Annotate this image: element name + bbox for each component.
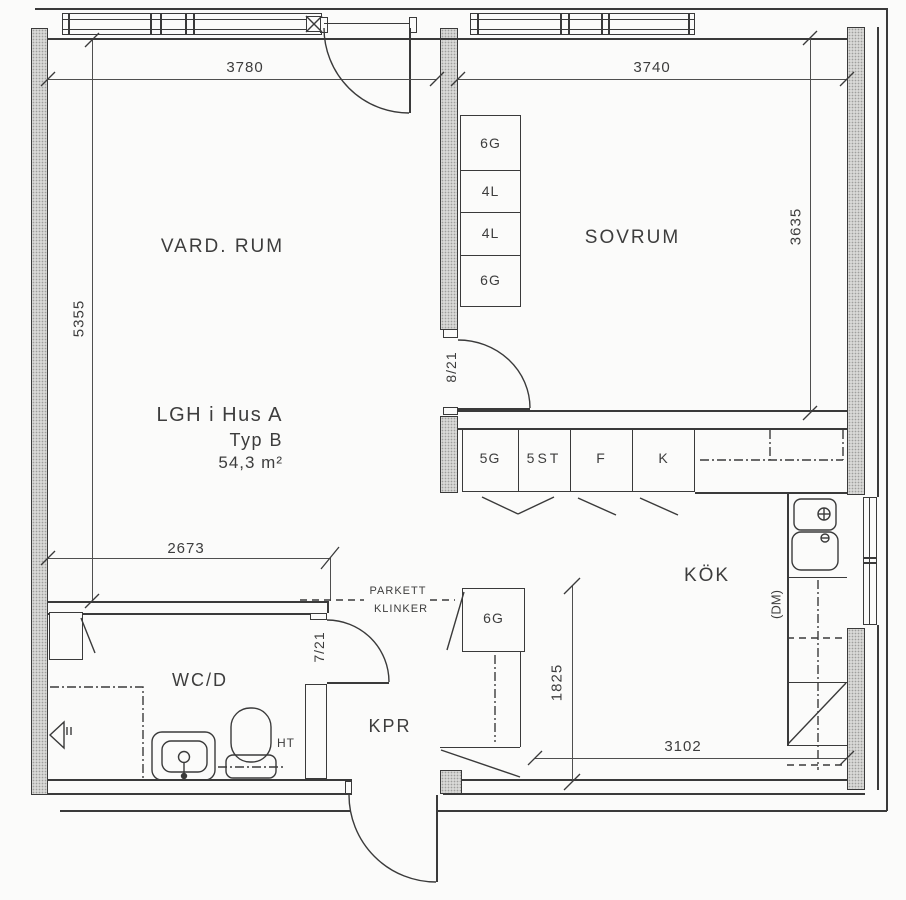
- dim-line-1825: [572, 586, 573, 782]
- bedroom-window-mullion-3: [601, 13, 603, 35]
- wcd-wall-right: [305, 684, 327, 779]
- wardrobe-divider-2: [460, 212, 521, 213]
- bedroom-window-glass-2: [470, 29, 695, 30]
- bottom-wall-bottom-left: [48, 793, 352, 795]
- right-wall-outer-lower: [877, 625, 879, 790]
- kitchen-window-split-2: [863, 562, 877, 564]
- wcd-wall-top-end: [327, 601, 329, 613]
- bedroom-door-leaf: [458, 408, 530, 410]
- hall-niche-top-edge: [440, 747, 520, 748]
- living-window-glass-2: [62, 29, 322, 30]
- wcd-wall-top-2: [48, 613, 327, 615]
- washbasin-bowl: [162, 741, 207, 772]
- counter-diagonal: [788, 683, 846, 744]
- outer-line-bottom-right: [438, 810, 887, 812]
- dim-line-3740: [458, 79, 847, 80]
- sink-counter-left-edge: [787, 492, 789, 745]
- dim-text-1825: 1825: [549, 653, 566, 713]
- wardrobe-cabinet-label: 4L: [460, 183, 521, 199]
- bedroom-door-jamb-bottom: [443, 407, 458, 415]
- bedroom-window-frame: [470, 13, 695, 35]
- bottom-wall-bottom-right: [443, 793, 865, 795]
- door-label-bedroom: 8/21: [443, 337, 459, 397]
- bedroom-window-mullion-1: [560, 13, 562, 35]
- entry-door-leaf: [436, 795, 438, 882]
- dim-text-3102: 3102: [638, 738, 728, 755]
- title-block: LGH i Hus A Typ B 54,3 m²: [100, 404, 283, 473]
- kitchen-cabinet-label: 5ST: [518, 450, 570, 466]
- living-window-mullion-1: [150, 13, 152, 35]
- kitchen-cabinet-label: F: [570, 450, 632, 466]
- hall-cabinet-label: 6G: [462, 610, 525, 626]
- wall-right-lower: [847, 628, 865, 790]
- wardrobe-cabinet-label: 6G: [460, 135, 521, 151]
- towel-rail-label: HT: [277, 736, 295, 750]
- sink-counter-bottom: [787, 577, 847, 578]
- wall-right-upper: [847, 27, 865, 495]
- apartment-type: Typ B: [100, 430, 283, 451]
- top-wall-inner-face: [48, 38, 847, 40]
- living-window-mullion-3: [185, 13, 187, 35]
- bath-door-arc: [327, 620, 389, 682]
- kitchen-cabinet-label: 5G: [462, 450, 518, 466]
- balcony-door-threshold: [324, 23, 409, 24]
- dim-text-5355: 5355: [71, 289, 88, 349]
- room-label-hall: KPR: [355, 716, 425, 737]
- washbasin-icon: [152, 732, 215, 780]
- toilet-bowl: [231, 708, 271, 762]
- dim-line-2673: [48, 558, 330, 559]
- outer-line-bottom-left: [60, 810, 350, 812]
- outer-line-right: [886, 8, 888, 811]
- washbasin-drain: [182, 774, 187, 779]
- cabinet-front-marks: [482, 497, 678, 515]
- floor-plan: 6G 4L 4L 6G 5G 5ST F K 6G: [0, 0, 906, 900]
- bedroom-window-mullion-4: [608, 13, 610, 35]
- bedroom-door-arc: [458, 340, 530, 408]
- wcd-door-leaf: [327, 682, 389, 684]
- kitchen-sink-basin-1: [794, 499, 836, 530]
- bedroom-kitchen-wall-top: [443, 410, 847, 412]
- dim-ext-2673: [330, 558, 331, 601]
- bedroom-window-glass-1: [470, 19, 695, 20]
- living-window-post-left: [68, 13, 70, 35]
- kitchen-window-split-1: [863, 557, 877, 559]
- balcony-door-leaf: [409, 28, 411, 113]
- floor-label-tile: KLINKER: [366, 603, 436, 615]
- entry-door-jamb-left: [345, 781, 352, 794]
- dim-line-3780: [48, 79, 437, 80]
- entry-door-arc: [349, 795, 436, 882]
- bedroom-window-post-right: [688, 13, 690, 35]
- kitchen-drain-icon: [821, 534, 829, 542]
- shower-zone-line: [50, 687, 143, 779]
- kitchen-cabinet-label: K: [632, 450, 695, 466]
- living-window-mullion-2: [160, 13, 162, 35]
- apartment-title: LGH i Hus A: [100, 404, 283, 427]
- dim-line-5355: [92, 40, 93, 601]
- living-window-mullion-4: [193, 13, 195, 35]
- dim-text-3635: 3635: [788, 197, 805, 257]
- wardrobe-divider-3: [460, 255, 521, 256]
- room-label-kitchen: KÖK: [672, 565, 742, 587]
- room-label-living: VARD. RUM: [150, 236, 295, 258]
- room-label-bedroom: SOVRUM: [570, 227, 695, 249]
- outer-line-top: [35, 8, 888, 10]
- bottom-wall-top-left: [48, 779, 352, 781]
- wall-mid-lower: [440, 416, 458, 493]
- apartment-area: 54,3 m²: [100, 453, 283, 473]
- room-label-bath: WC/D: [165, 670, 235, 691]
- dishwasher-label: (DM): [769, 575, 784, 635]
- door-label-bath: 7/21: [311, 617, 327, 677]
- wall-mid-upper: [440, 28, 458, 330]
- counter-shelf-line-1: [787, 682, 847, 683]
- dim-text-2673: 2673: [141, 540, 231, 557]
- wcd-cabinet-diagonal: [81, 618, 95, 653]
- wcd-wall-top-1: [48, 601, 327, 603]
- wall-entry-pier: [440, 770, 462, 794]
- dim-line-3635: [810, 38, 811, 413]
- dim-line-3102: [535, 758, 847, 759]
- wardrobe-cabinet-label: 4L: [460, 225, 521, 241]
- washbasin-tap: [179, 752, 190, 763]
- living-window-glass-1: [62, 19, 322, 20]
- vent-triangle-icon: [50, 722, 64, 748]
- dim-text-3740: 3740: [607, 59, 697, 76]
- bottom-wall-top-right: [462, 779, 847, 781]
- bedroom-window-post-left: [477, 13, 479, 35]
- hall-niche-right-edge: [520, 652, 521, 747]
- right-wall-outer-upper: [877, 27, 879, 497]
- wcd-cabinet: [49, 612, 83, 660]
- counter-shelf-line-2: [787, 745, 847, 746]
- kitchen-window-frame: [863, 497, 877, 625]
- balcony-door-arc: [324, 28, 409, 113]
- wardrobe-cabinet-label: 6G: [460, 272, 521, 288]
- wall-left: [31, 28, 48, 795]
- kitchen-tap-icon: [818, 508, 830, 520]
- wardrobe-divider-1: [460, 170, 521, 171]
- bedroom-window-mullion-2: [568, 13, 570, 35]
- dim-text-3780: 3780: [200, 59, 290, 76]
- worktop-front-edge: [695, 492, 847, 494]
- toilet-tank: [226, 755, 276, 778]
- kitchen-window-glass: [869, 497, 870, 625]
- living-window-frame: [62, 13, 322, 35]
- balcony-door-jamb-left: [320, 17, 328, 33]
- kitchen-sink-basin-2: [792, 532, 838, 570]
- floor-label-parquet: PARKETT: [363, 585, 433, 597]
